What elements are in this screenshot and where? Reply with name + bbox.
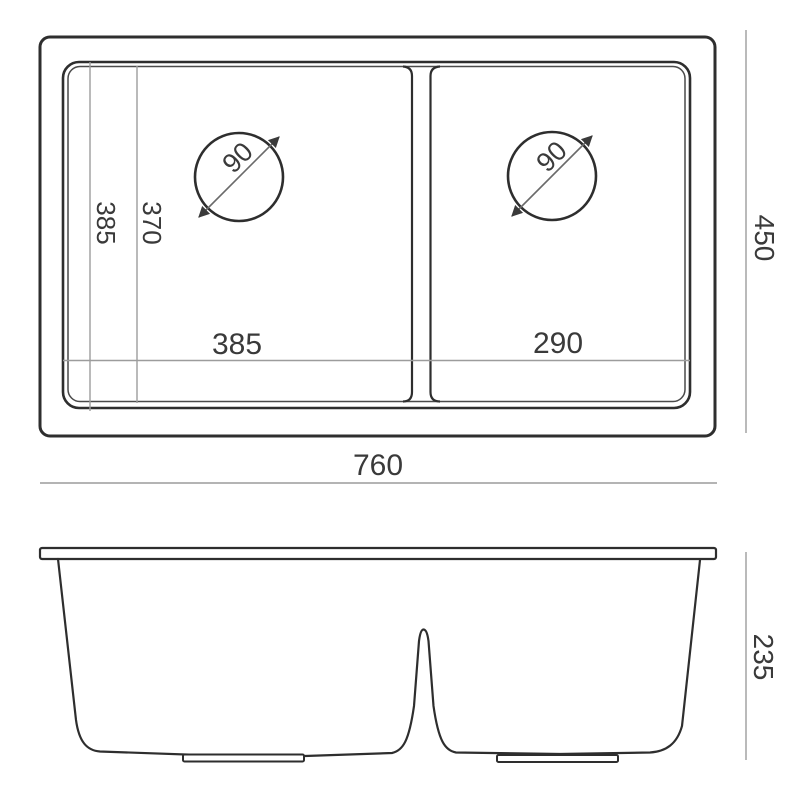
bowl-base-depth-label: 370 bbox=[139, 201, 165, 244]
front-view-left-pad bbox=[183, 755, 304, 762]
sink-technical-drawing: 760 385 290 450 235 385 370 90 90 bbox=[0, 0, 800, 794]
overall-depth-label: 450 bbox=[750, 215, 778, 262]
bowl1-width-label: 385 bbox=[212, 330, 262, 360]
front-view-rim bbox=[40, 548, 716, 559]
front-view-body-profile bbox=[58, 559, 700, 756]
bowl2-width-label: 290 bbox=[533, 329, 583, 359]
bowl-depth-label: 385 bbox=[93, 201, 119, 244]
overall-width-label: 760 bbox=[353, 451, 403, 481]
front-view-right-pad bbox=[497, 755, 618, 762]
front-view bbox=[40, 548, 746, 762]
overall-height-label: 235 bbox=[749, 634, 777, 681]
top-view bbox=[40, 30, 746, 483]
drawing-linework bbox=[0, 0, 800, 794]
